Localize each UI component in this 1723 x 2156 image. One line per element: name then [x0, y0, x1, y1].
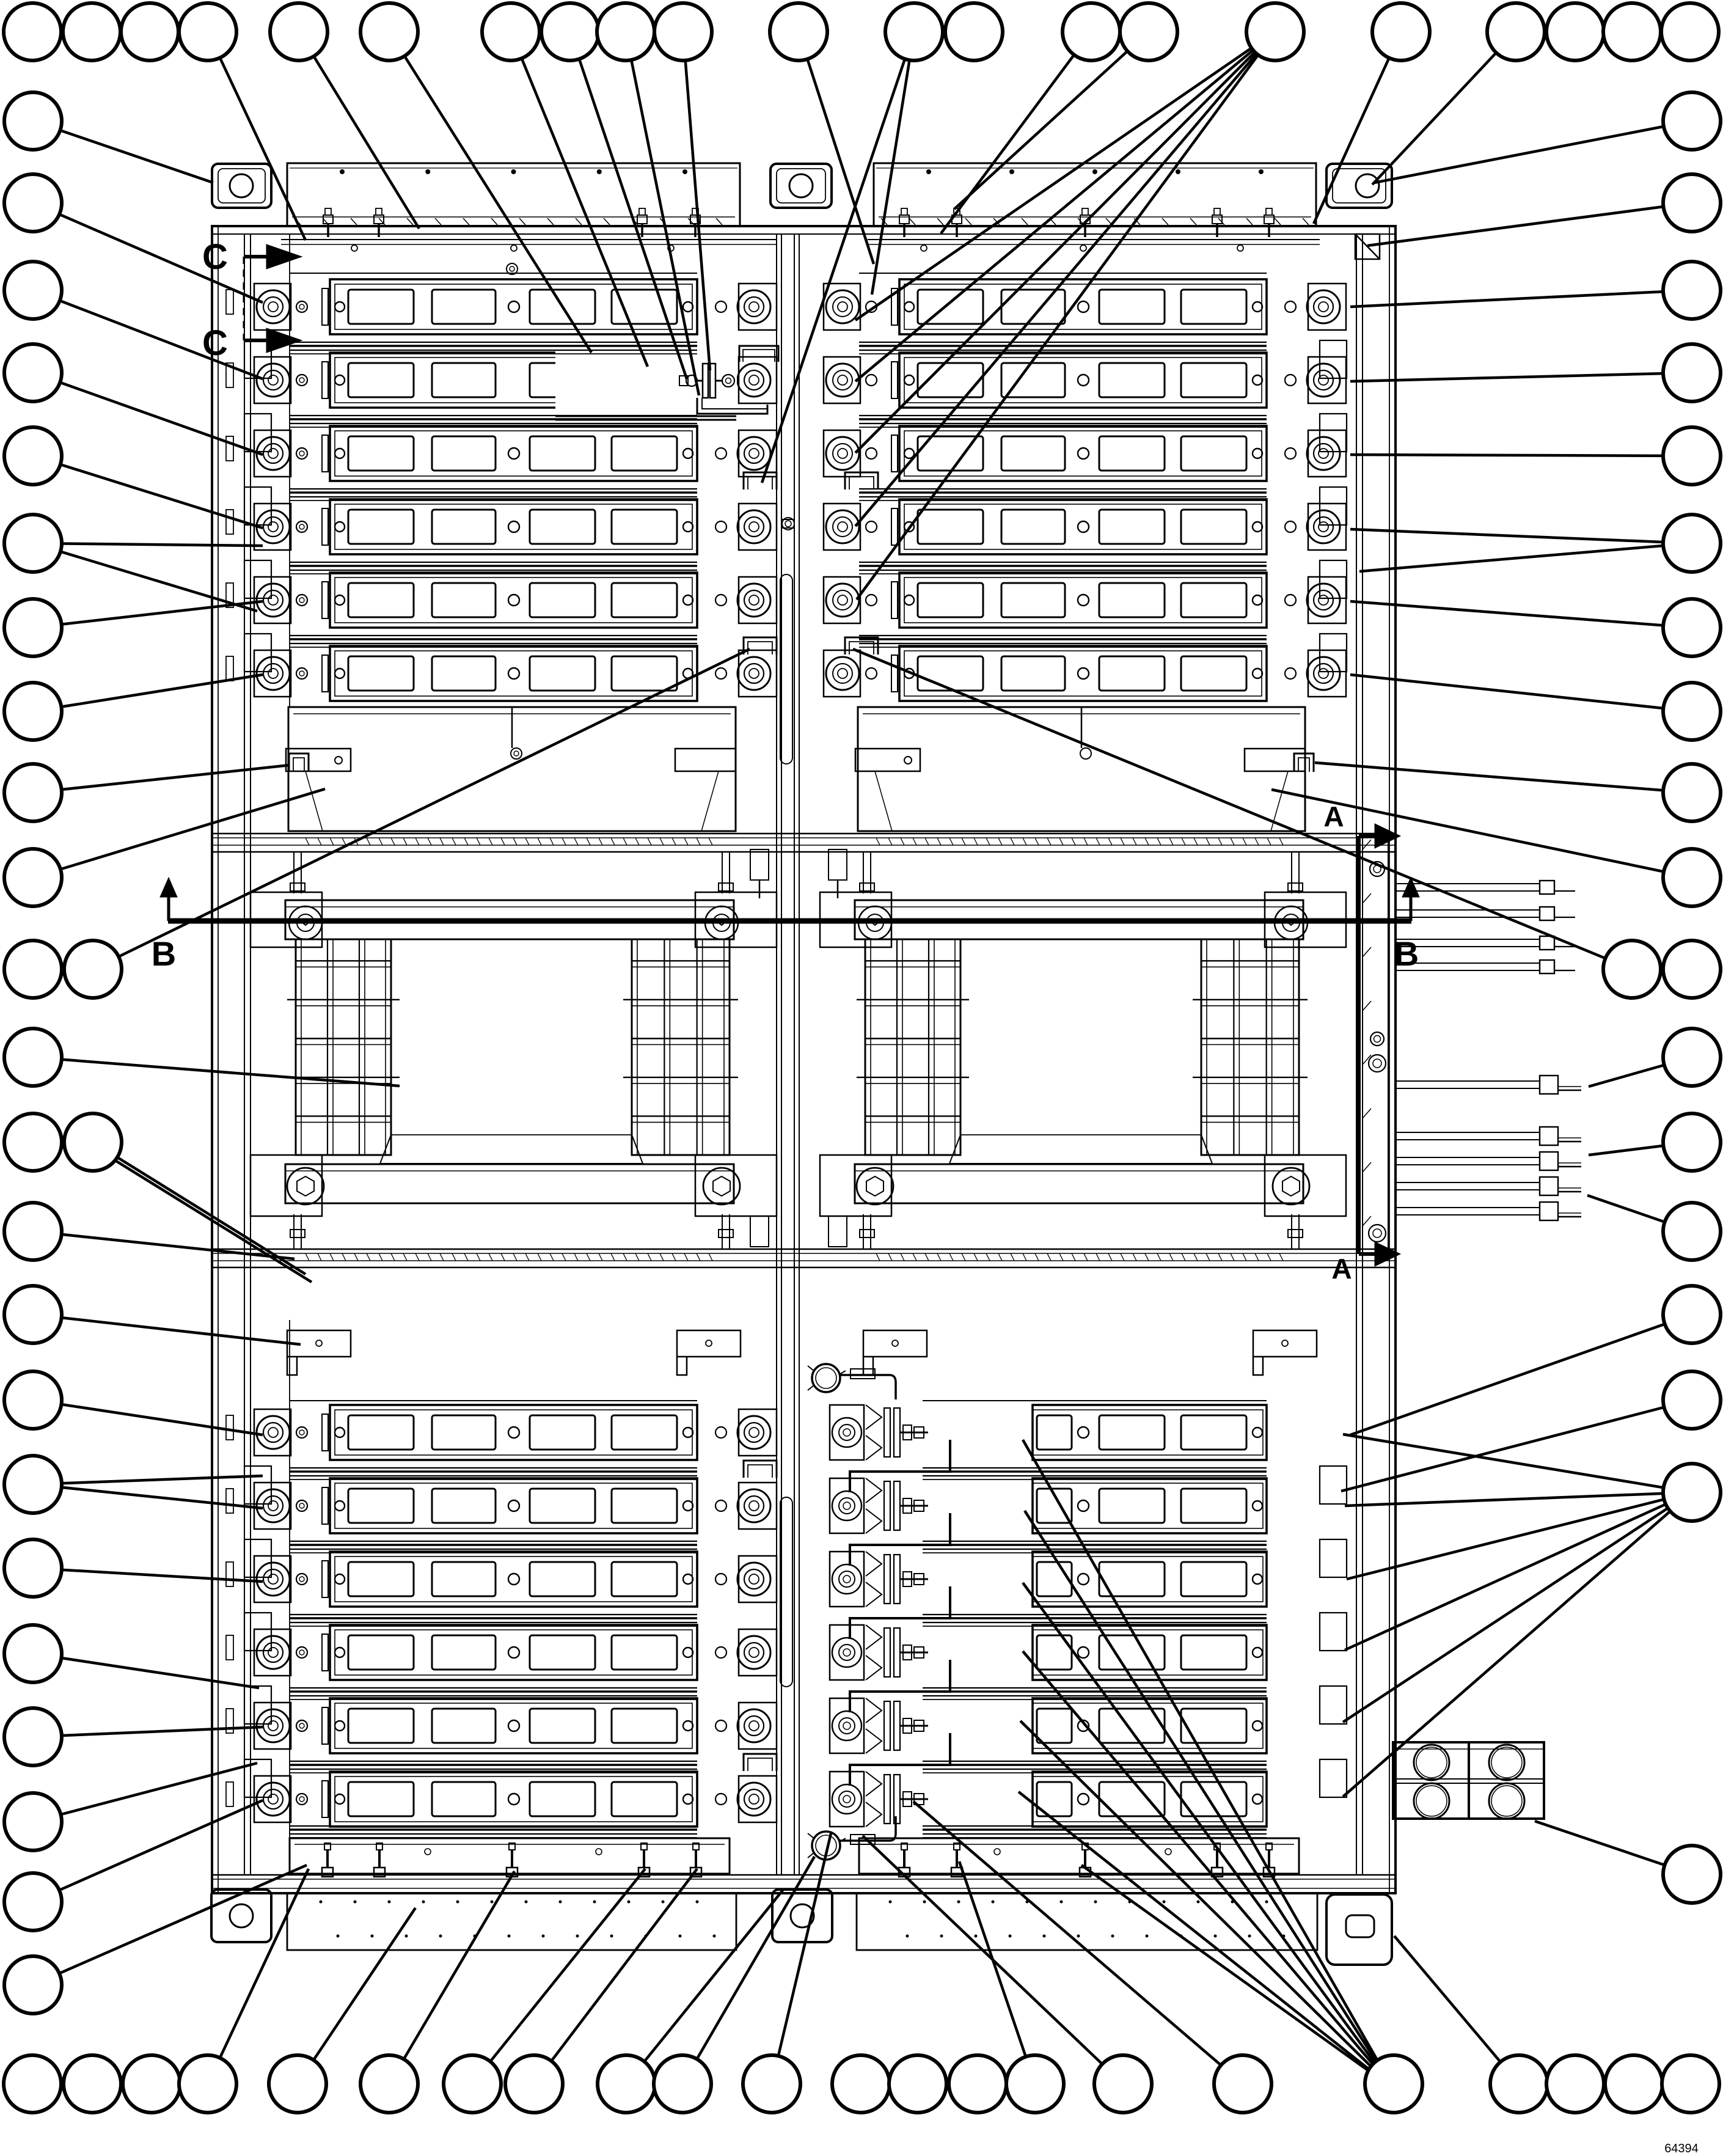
svg-text:B: B	[152, 934, 176, 973]
svg-text:B: B	[1394, 934, 1419, 973]
svg-text:C: C	[202, 323, 228, 363]
svg-text:A: A	[1331, 1253, 1352, 1285]
svg-text:C: C	[202, 237, 228, 277]
svg-text:64394: 64394	[1664, 2142, 1699, 2155]
svg-text:A: A	[1323, 801, 1344, 832]
